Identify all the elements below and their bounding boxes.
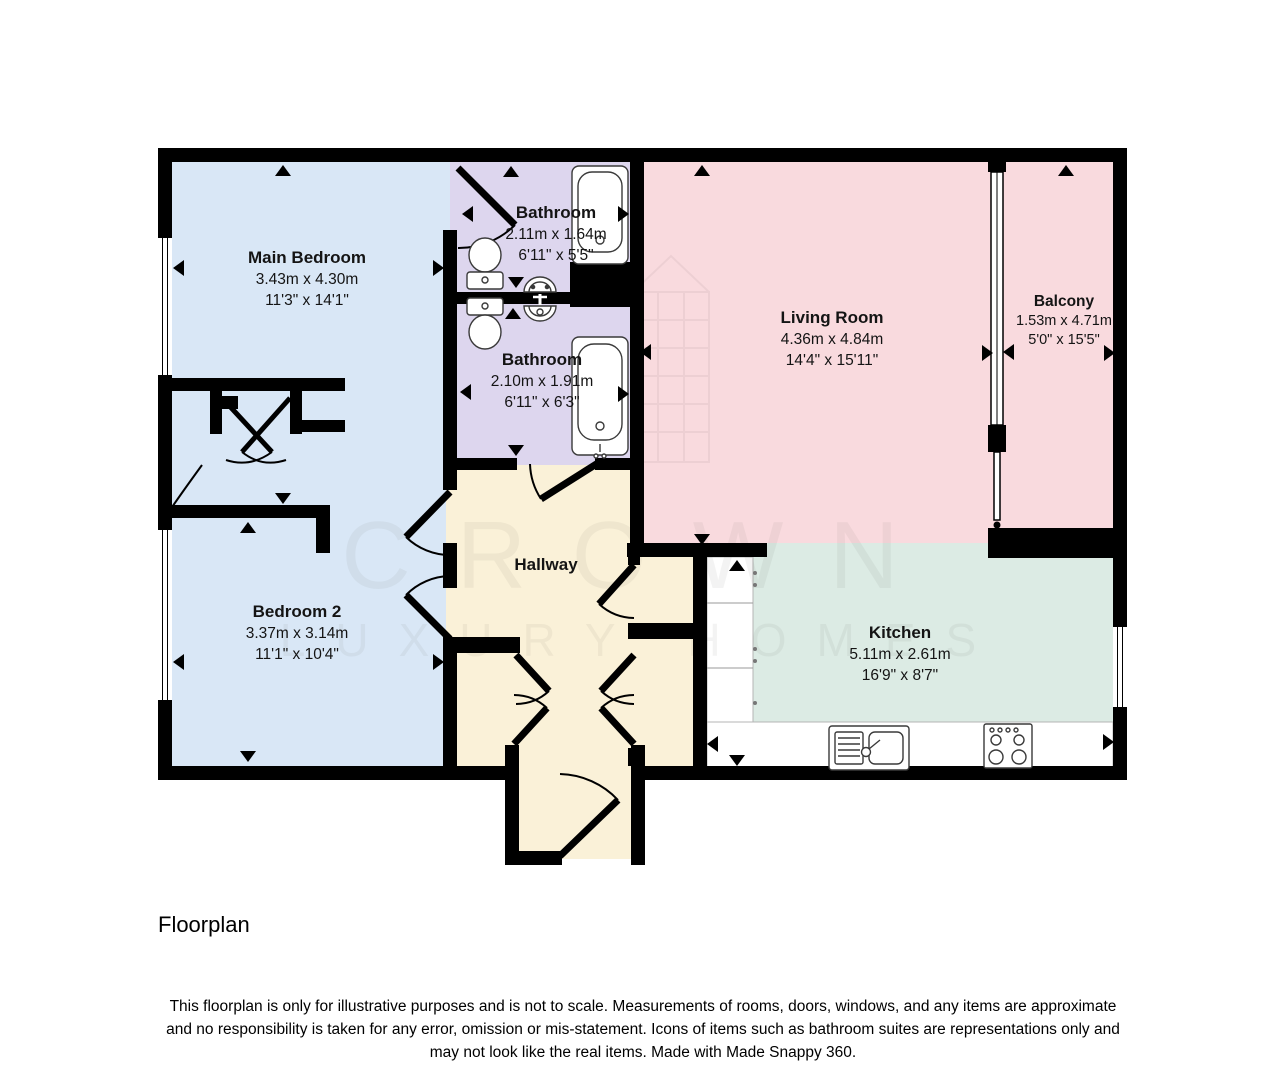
room-name: Hallway xyxy=(514,554,577,576)
room-dim-metric: 5.11m x 2.61m xyxy=(849,646,950,663)
disclaimer: This floorplan is only for illustrative … xyxy=(0,995,1286,1064)
room-dim-imperial: 14'4" x 15'11" xyxy=(786,352,878,369)
room-dim-metric: 2.10m x 1.91m xyxy=(491,373,594,390)
window-icon xyxy=(1113,627,1127,707)
room-dim-imperial: 6'11" x 6'3" xyxy=(504,394,579,411)
room-label-living-room: Living Room 4.36m x 4.84m 14'4" x 15'11" xyxy=(781,307,884,371)
room-label-kitchen: Kitchen 5.11m x 2.61m 16'9" x 8'7" xyxy=(849,622,950,686)
room-label-main-bedroom: Main Bedroom 3.43m x 4.30m 11'3" x 14'1" xyxy=(248,247,366,311)
room-label-hallway: Hallway xyxy=(514,554,577,576)
kitchen-sink-icon xyxy=(829,726,909,770)
room-dim-imperial: 16'9" x 8'7" xyxy=(862,667,938,684)
room-name: Balcony xyxy=(1016,292,1112,312)
room-name: Main Bedroom xyxy=(248,247,366,269)
window-icon xyxy=(158,530,172,700)
room-dim-metric: 4.36m x 4.84m xyxy=(781,331,884,348)
room-dim-metric: 3.37m x 3.14m xyxy=(246,625,349,642)
balcony-door xyxy=(994,452,1001,529)
disclaimer-line: and no responsibility is taken for any e… xyxy=(0,1018,1286,1041)
room-dim-imperial: 11'1" x 10'4" xyxy=(255,646,339,663)
room-dim-metric: 2.11m x 1.64m xyxy=(505,226,606,243)
main-bedroom-floor xyxy=(163,152,453,515)
page-title: Floorplan xyxy=(158,912,250,938)
kitchen-counter-strip xyxy=(707,722,1113,767)
room-name: Living Room xyxy=(781,307,884,329)
room-name: Bedroom 2 xyxy=(246,601,349,623)
hob-icon xyxy=(984,724,1032,768)
room-label-bathroom-1: Bathroom 2.11m x 1.64m 6'11" x 5'5" xyxy=(505,202,606,266)
room-label-balcony: Balcony 1.53m x 4.71m 5'0" x 15'5" xyxy=(1016,292,1112,350)
room-dim-imperial: 11'3" x 14'1" xyxy=(265,292,349,309)
room-name: Kitchen xyxy=(849,622,950,644)
room-label-bedroom-2: Bedroom 2 3.37m x 3.14m 11'1" x 10'4" xyxy=(246,601,349,665)
disclaimer-line: This floorplan is only for illustrative … xyxy=(0,995,1286,1018)
disclaimer-line: may not look like the real items. Made w… xyxy=(0,1041,1286,1064)
toilet-icon xyxy=(467,298,503,349)
window-icon xyxy=(158,238,172,375)
floorplan-page: CROWN LUXURY HOMES xyxy=(0,0,1286,1080)
window-icon xyxy=(991,172,1003,425)
room-dim-metric: 3.43m x 4.30m xyxy=(256,271,359,288)
room-name: Bathroom xyxy=(491,349,594,371)
room-name: Bathroom xyxy=(505,202,606,224)
room-dim-metric: 1.53m x 4.71m xyxy=(1016,313,1112,329)
room-dim-imperial: 6'11" x 5'5" xyxy=(518,247,593,264)
room-dim-imperial: 5'0" x 15'5" xyxy=(1028,332,1099,348)
floorplan-svg: CROWN LUXURY HOMES xyxy=(0,0,1286,920)
room-label-bathroom-2: Bathroom 2.10m x 1.91m 6'11" x 6'3" xyxy=(491,349,594,413)
toilet-icon xyxy=(467,238,503,289)
